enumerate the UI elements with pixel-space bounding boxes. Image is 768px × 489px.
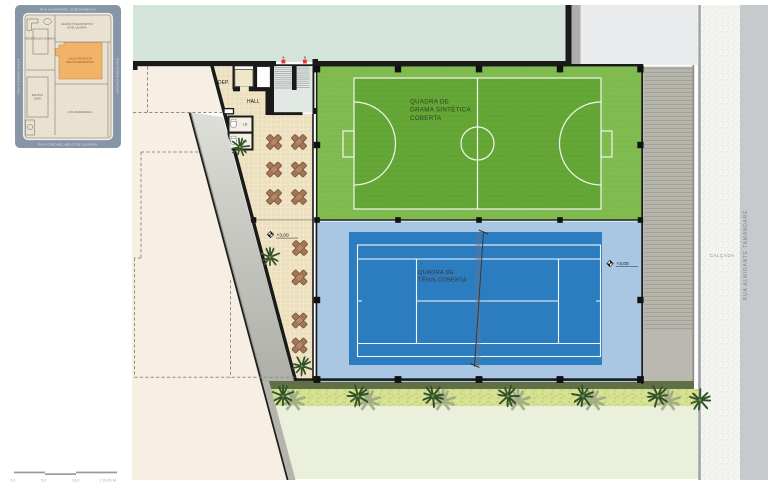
svg-text:1 15,00 M: 1 15,00 M [99,479,116,483]
svg-text:TÊNIS COBERTA: TÊNIS COBERTA [418,276,467,284]
svg-text:QUADRA DE: QUADRA DE [418,270,454,276]
svg-text:GRAMA SINTÉTICA: GRAMA SINTÉTICA [410,107,471,114]
svg-text:HALL: HALL [247,99,260,105]
svg-text:RUA ALMIRANTE JOSÉ BARBOSA: RUA ALMIRANTE JOSÉ BARBOSA [40,7,96,12]
svg-text:10,0: 10,0 [72,479,79,483]
svg-text:+3,00: +3,00 [617,261,629,267]
svg-text:RUA ALMIRANTE TAMANDARÉ: RUA ALMIRANTE TAMANDARÉ [742,210,749,301]
svg-text:CALÇADA: CALÇADA [710,253,736,258]
svg-text:0,0: 0,0 [10,479,15,483]
svg-text:QUADRA DE: QUADRA DE [410,99,449,106]
svg-text:RUA PADRE CHAGAS: RUA PADRE CHAGAS [116,58,120,93]
svg-text:RUA CORONEL MELO DE OLIVEIRA: RUA CORONEL MELO DE OLIVEIRA [38,143,97,147]
svg-text:SEDE: SEDE [34,97,41,101]
svg-text:COBERTA: COBERTA [410,115,442,122]
svg-text:LOCAL PROPOSTO: LOCAL PROPOSTO [68,56,92,60]
svg-text:RUA CAMPOS SALES: RUA CAMPOS SALES [17,58,21,93]
svg-text:I.S: I.S [243,123,248,127]
svg-text:LOTE RESIDENCIAL: LOTE RESIDENCIAL [68,110,93,114]
svg-text:NÍVEL QUADRA: NÍVEL QUADRA [67,26,86,30]
svg-text:EDIFÍCIO: EDIFÍCIO [32,93,43,97]
svg-text:DEP.: DEP. [218,80,229,86]
svg-text:+3,00: +3,00 [277,233,289,239]
svg-text:GINÁSIO POLIESPORTIVO: GINÁSIO POLIESPORTIVO [61,22,94,26]
svg-text:5,0: 5,0 [41,479,46,483]
